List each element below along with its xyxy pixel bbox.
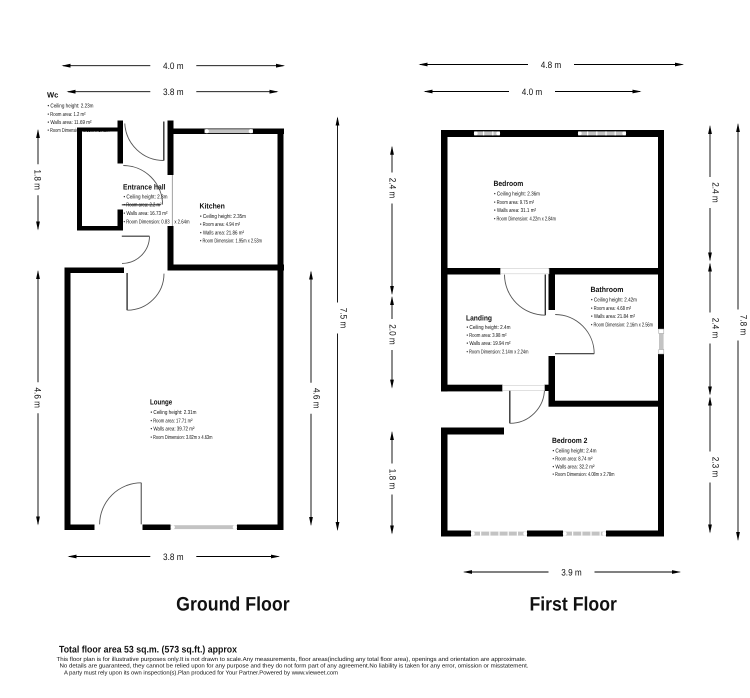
svg-text:A party must rely upon its own: A party must rely upon its own inspectio…	[64, 669, 338, 676]
svg-text:• Walls area: 32.2 m²: • Walls area: 32.2 m²	[553, 463, 595, 470]
svg-text:3.9 m: 3.9 m	[561, 567, 582, 577]
svg-text:Total floor area 53 sq.m. (573: Total floor area 53 sq.m. (573 sq.ft.) a…	[59, 645, 238, 656]
svg-text:Landing: Landing	[466, 314, 492, 323]
svg-text:3.8 m: 3.8 m	[163, 552, 184, 562]
svg-text:Lounge: Lounge	[150, 398, 172, 407]
svg-text:• Room area: 9.75 m²: • Room area: 9.75 m²	[494, 200, 534, 206]
svg-text:1.8 m: 1.8 m	[32, 170, 42, 191]
svg-text:No details are guaranteed, the: No details are guaranteed, they cannot b…	[60, 663, 529, 670]
svg-text:• Walls area: 16.73 m²: • Walls area: 16.73 m²	[124, 210, 168, 217]
svg-text:• Room Dimension: 0.83 x 2.: • Room Dimension: 0.83 x 2.64m	[124, 218, 190, 225]
svg-text:• Ceiling height: 2.3m: • Ceiling height: 2.3m	[124, 193, 168, 200]
svg-text:• Ceiling height: 2.4m: • Ceiling height: 2.4m	[467, 324, 511, 331]
svg-text:• Walls area: 21.84 m²: • Walls area: 21.84 m²	[591, 313, 635, 320]
svg-text:Bedroom 2: Bedroom 2	[552, 436, 587, 445]
svg-text:• Walls area: 11.69 m²: • Walls area: 11.69 m²	[48, 119, 92, 126]
svg-text:• Room Dimension: 2.14m x 2.24: • Room Dimension: 2.14m x 2.24m	[467, 348, 529, 355]
svg-text:2.0 m: 2.0 m	[388, 324, 398, 345]
svg-text:• Room Dimension: 2.16m x 2.56: • Room Dimension: 2.16m x 2.56m	[591, 321, 653, 328]
svg-text:This floor plan is for illustr: This floor plan is for illustrative purp…	[57, 656, 527, 663]
svg-text:• Room area: 4.68 m²: • Room area: 4.68 m²	[591, 306, 631, 312]
svg-text:2.3 m: 2.3 m	[711, 457, 721, 478]
svg-text:• Room Dimension: 3.82m x 4.63: • Room Dimension: 3.82m x 4.63m	[151, 434, 213, 441]
svg-text:• Room Dimension: 4.08m x 2.78: • Room Dimension: 4.08m x 2.78m	[553, 471, 615, 478]
svg-text:• Ceiling height: 2.36m: • Ceiling height: 2.36m	[494, 191, 540, 198]
svg-text:• Ceiling height: 2.42m: • Ceiling height: 2.42m	[591, 297, 637, 304]
svg-text:4.0 m: 4.0 m	[522, 87, 543, 97]
svg-text:Bathroom: Bathroom	[591, 285, 624, 294]
svg-text:7.8 m: 7.8 m	[739, 315, 749, 336]
svg-text:Entrance hall: Entrance hall	[123, 182, 166, 191]
svg-text:• Room area: 3.98 m²: • Room area: 3.98 m²	[467, 333, 507, 339]
svg-text:2.4 m: 2.4 m	[388, 178, 398, 199]
svg-text:Ground Floor: Ground Floor	[176, 594, 290, 616]
svg-text:• Walls area: 31.1 m²: • Walls area: 31.1 m²	[494, 207, 536, 214]
svg-text:• Room area: 2.2 m²: • Room area: 2.2 m²	[124, 203, 162, 209]
svg-text:Kitchen: Kitchen	[200, 201, 226, 210]
svg-text:2.4 m: 2.4 m	[711, 182, 721, 203]
svg-text:4.8 m: 4.8 m	[541, 60, 562, 70]
svg-text:• Room Dimension: 4.22m x 2.84: • Room Dimension: 4.22m x 2.84m	[494, 215, 556, 222]
svg-text:• Room area: 8.74 m²: • Room area: 8.74 m²	[553, 456, 593, 462]
svg-text:• Room area: 17.71 m²: • Room area: 17.71 m²	[151, 418, 193, 424]
svg-text:Bedroom: Bedroom	[494, 179, 524, 188]
svg-text:First Floor: First Floor	[529, 594, 617, 616]
svg-text:4.6 m: 4.6 m	[312, 388, 322, 409]
svg-text:Wc: Wc	[47, 91, 58, 100]
svg-text:• Walls area: 19.94 m²: • Walls area: 19.94 m²	[467, 340, 511, 347]
svg-text:• Room Dimension: 1.95m x 2.53: • Room Dimension: 1.95m x 2.53m	[200, 238, 262, 245]
svg-text:• Room area: 1.2 m²: • Room area: 1.2 m²	[48, 112, 86, 118]
svg-text:• Walls area: 39.72 m²: • Walls area: 39.72 m²	[151, 426, 195, 433]
svg-text:7.5 m: 7.5 m	[339, 308, 349, 329]
svg-text:2.4 m: 2.4 m	[711, 318, 721, 339]
svg-text:• Ceiling height: 2.23m: • Ceiling height: 2.23m	[48, 103, 94, 110]
svg-text:• Walls area: 21.86 m²: • Walls area: 21.86 m²	[200, 229, 244, 236]
svg-text:3.8 m: 3.8 m	[163, 87, 184, 97]
svg-text:4.0 m: 4.0 m	[163, 61, 184, 71]
svg-text:• Ceiling height: 2.4m: • Ceiling height: 2.4m	[553, 448, 597, 455]
svg-text:1.8 m: 1.8 m	[388, 469, 398, 490]
svg-text:• Ceiling height: 2.35m: • Ceiling height: 2.35m	[200, 213, 246, 220]
svg-text:• Ceiling height: 2.31m: • Ceiling height: 2.31m	[151, 409, 197, 416]
svg-text:• Room area: 4.94 m²: • Room area: 4.94 m²	[200, 222, 240, 228]
svg-text:4.6 m: 4.6 m	[32, 388, 42, 409]
